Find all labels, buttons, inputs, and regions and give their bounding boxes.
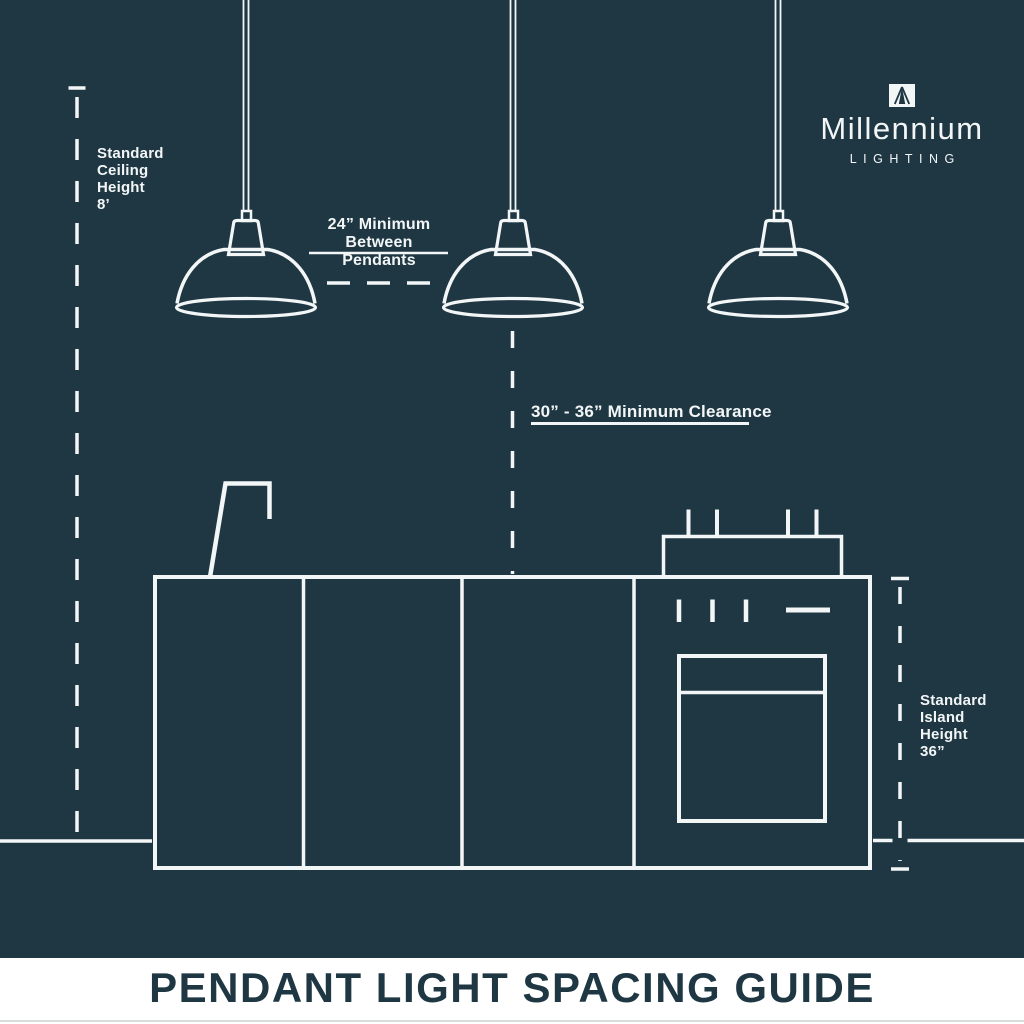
kitchen-island-outline — [155, 577, 870, 868]
pendant-light-center — [444, 0, 583, 317]
ceiling-height-label: Standard Ceiling Height 8’ — [97, 145, 164, 213]
clearance-label: 30” - 36” Minimum Clearance — [531, 402, 772, 422]
pendant-light-left — [177, 0, 316, 317]
pendant-cord — [776, 0, 781, 212]
banner-bottom-edge — [0, 1020, 1024, 1022]
pendant-beam-icon — [889, 84, 915, 107]
island-height-label: Standard Island Height 36” — [920, 692, 987, 760]
pendant-cord — [244, 0, 249, 212]
brand-logo: Millennium LIGHTING — [802, 84, 1002, 166]
ceiling-height-dimension-line — [69, 88, 86, 838]
oven-knobs — [679, 600, 746, 623]
brand-tagline: LIGHTING — [802, 152, 1002, 166]
burner-posts — [689, 510, 817, 536]
pendant-rim — [177, 299, 316, 317]
oven-door — [679, 656, 825, 821]
range-backsplash — [664, 537, 842, 578]
pendant-shade — [177, 250, 315, 304]
brand-name: Millennium — [802, 111, 1002, 147]
pendant-rim — [444, 299, 583, 317]
pendant-cord — [511, 0, 516, 212]
pendant-shade — [709, 250, 847, 304]
pendant-rim — [709, 299, 848, 317]
between-pendants-label: 24” Minimum Between Pendants — [309, 216, 449, 270]
infographic-canvas: Standard Ceiling Height 8’ 24” Minimum B… — [0, 0, 1024, 1024]
faucet-outline — [210, 484, 270, 578]
pendant-shade — [444, 250, 582, 304]
island-height-dimension-line — [891, 579, 909, 870]
title-banner: PENDANT LIGHT SPACING GUIDE — [0, 958, 1024, 1024]
island-panel-dividers — [304, 577, 635, 868]
page-title: PENDANT LIGHT SPACING GUIDE — [149, 964, 875, 1012]
